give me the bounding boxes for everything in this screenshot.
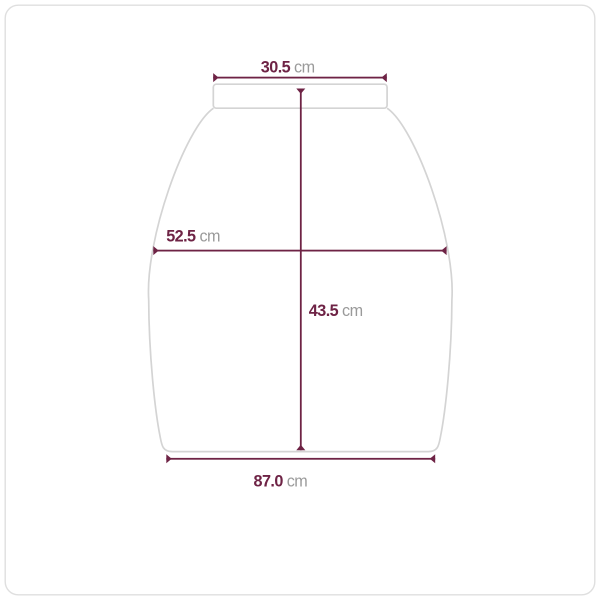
svg-text:87.0 cm: 87.0 cm xyxy=(254,472,308,490)
svg-text:52.5 cm: 52.5 cm xyxy=(166,228,220,246)
svg-text:43.5 cm: 43.5 cm xyxy=(309,302,363,320)
svg-text:30.5 cm: 30.5 cm xyxy=(261,59,315,77)
